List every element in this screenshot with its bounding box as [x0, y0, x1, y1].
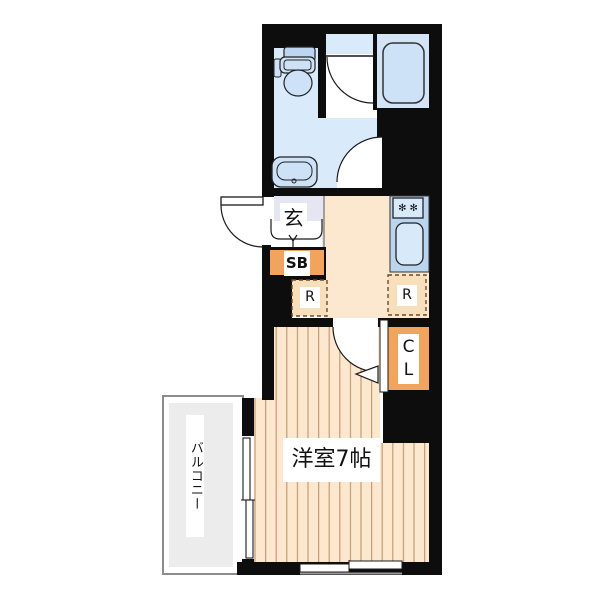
bathtub	[383, 43, 424, 103]
closet-door	[380, 320, 388, 392]
bottom-window-panel-2	[349, 561, 402, 569]
washroom-threshold	[337, 182, 382, 188]
entrance-door-swing	[221, 205, 263, 247]
balcony-window-panel-1	[243, 438, 250, 500]
closet-label-bottom: L	[404, 359, 413, 382]
storage-left-label: R	[300, 287, 320, 308]
storage-right-label: R	[397, 285, 417, 306]
entrance-label: 玄	[280, 203, 307, 233]
room-door-threshold	[333, 318, 378, 327]
shoe-box-label: SB	[284, 251, 310, 276]
bottom-window-panel-1	[300, 564, 349, 572]
kitchen-sink	[396, 223, 423, 265]
western-room-label: 洋室7帖	[283, 438, 380, 482]
floor-plan: 玄 SB R R C L 洋室7帖 バルコニー ✻✻	[0, 0, 600, 600]
closet-label: C L	[398, 334, 419, 384]
balcony-label: バルコニー	[186, 415, 204, 537]
closet-label-top: C	[403, 336, 415, 359]
shower-threshold	[326, 112, 373, 118]
entrance-door-leaf	[221, 197, 263, 205]
shower-door-area	[326, 54, 373, 112]
stove-burners-icon: ✻✻	[393, 199, 423, 217]
balcony-window-panel-2	[246, 500, 253, 558]
toilet-bowl	[284, 70, 312, 96]
